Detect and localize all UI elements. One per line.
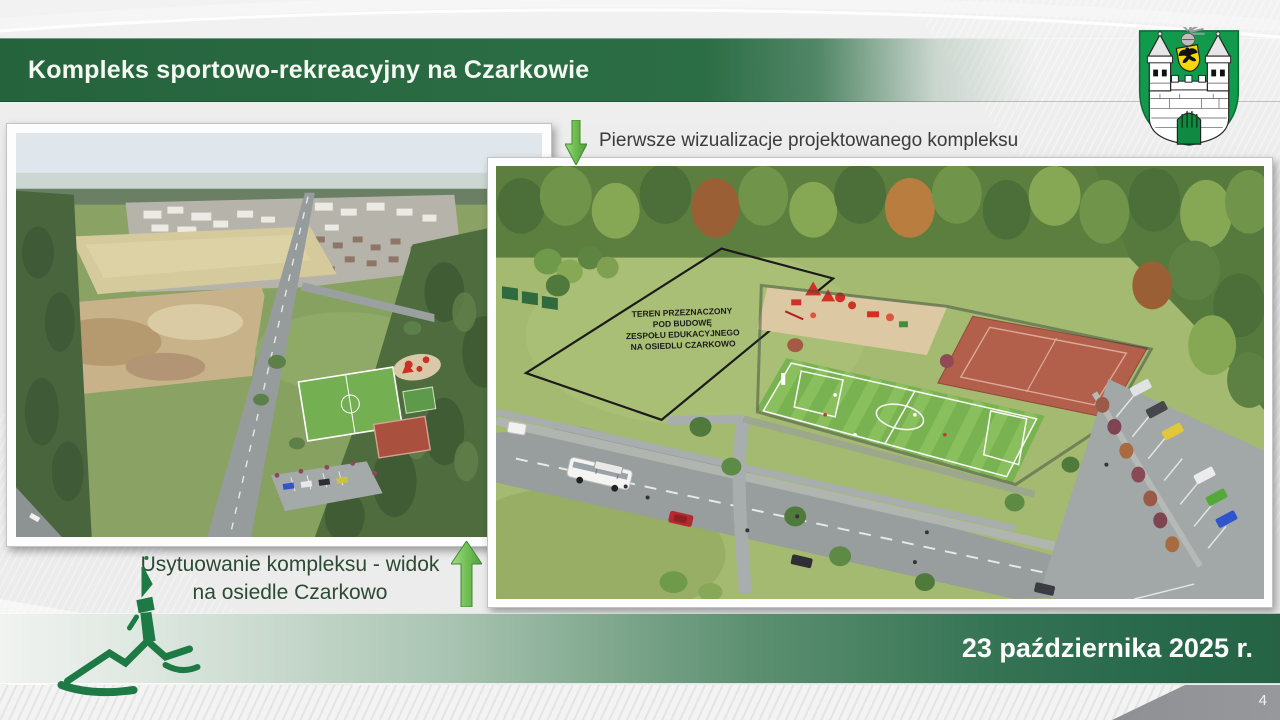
title-bar: Kompleks sportowo-rekreacyjny na Czarkow… xyxy=(0,38,1280,102)
caption-visualizations-text: Pierwsze wizualizacje projektowanego kom… xyxy=(599,130,1018,152)
caption-visualizations: Pierwsze wizualizacje projektowanego kom… xyxy=(565,120,1018,165)
arrow-up-icon xyxy=(451,541,482,607)
aerial-photo-czarkowo xyxy=(6,123,552,547)
slide: Kompleks sportowo-rekreacyjny na Czarkow… xyxy=(0,0,1280,720)
visualization-picture: TEREN PRZEZNACZONY POD BUDOWĘ ZESPOŁU ED… xyxy=(487,157,1273,608)
slide-date: 23 października 2025 r. xyxy=(962,633,1253,664)
visualization-image: TEREN PRZEZNACZONY POD BUDOWĘ ZESPOŁU ED… xyxy=(496,166,1264,599)
city-coat-of-arms-icon xyxy=(1135,27,1243,148)
plot-label-line2: POD BUDOWĘ xyxy=(653,317,713,329)
hill-tower-sketch-logo xyxy=(45,553,210,703)
arrow-down-icon xyxy=(565,120,587,165)
slide-title: Kompleks sportowo-rekreacyjny na Czarkow… xyxy=(28,56,589,85)
aerial-photo-image xyxy=(16,133,542,537)
page-number: 4 xyxy=(1259,692,1267,709)
